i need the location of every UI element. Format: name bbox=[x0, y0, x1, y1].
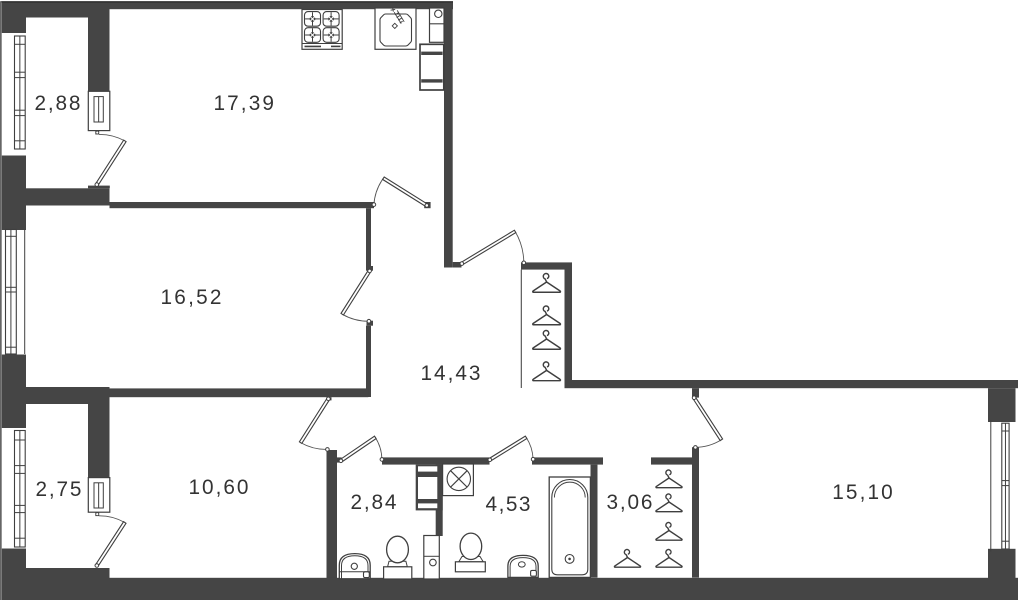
svg-text:15,10: 15,10 bbox=[832, 481, 893, 504]
svg-text:10,60: 10,60 bbox=[189, 476, 249, 499]
svg-text:17,39: 17,39 bbox=[213, 92, 274, 115]
svg-text:2,84: 2,84 bbox=[351, 491, 397, 514]
svg-text:14,43: 14,43 bbox=[421, 362, 481, 385]
svg-text:4,53: 4,53 bbox=[486, 493, 531, 516]
svg-text:2,75: 2,75 bbox=[36, 478, 82, 501]
svg-text:2,88: 2,88 bbox=[35, 92, 81, 115]
svg-text:3,06: 3,06 bbox=[607, 491, 653, 514]
svg-text:16,52: 16,52 bbox=[161, 286, 222, 309]
